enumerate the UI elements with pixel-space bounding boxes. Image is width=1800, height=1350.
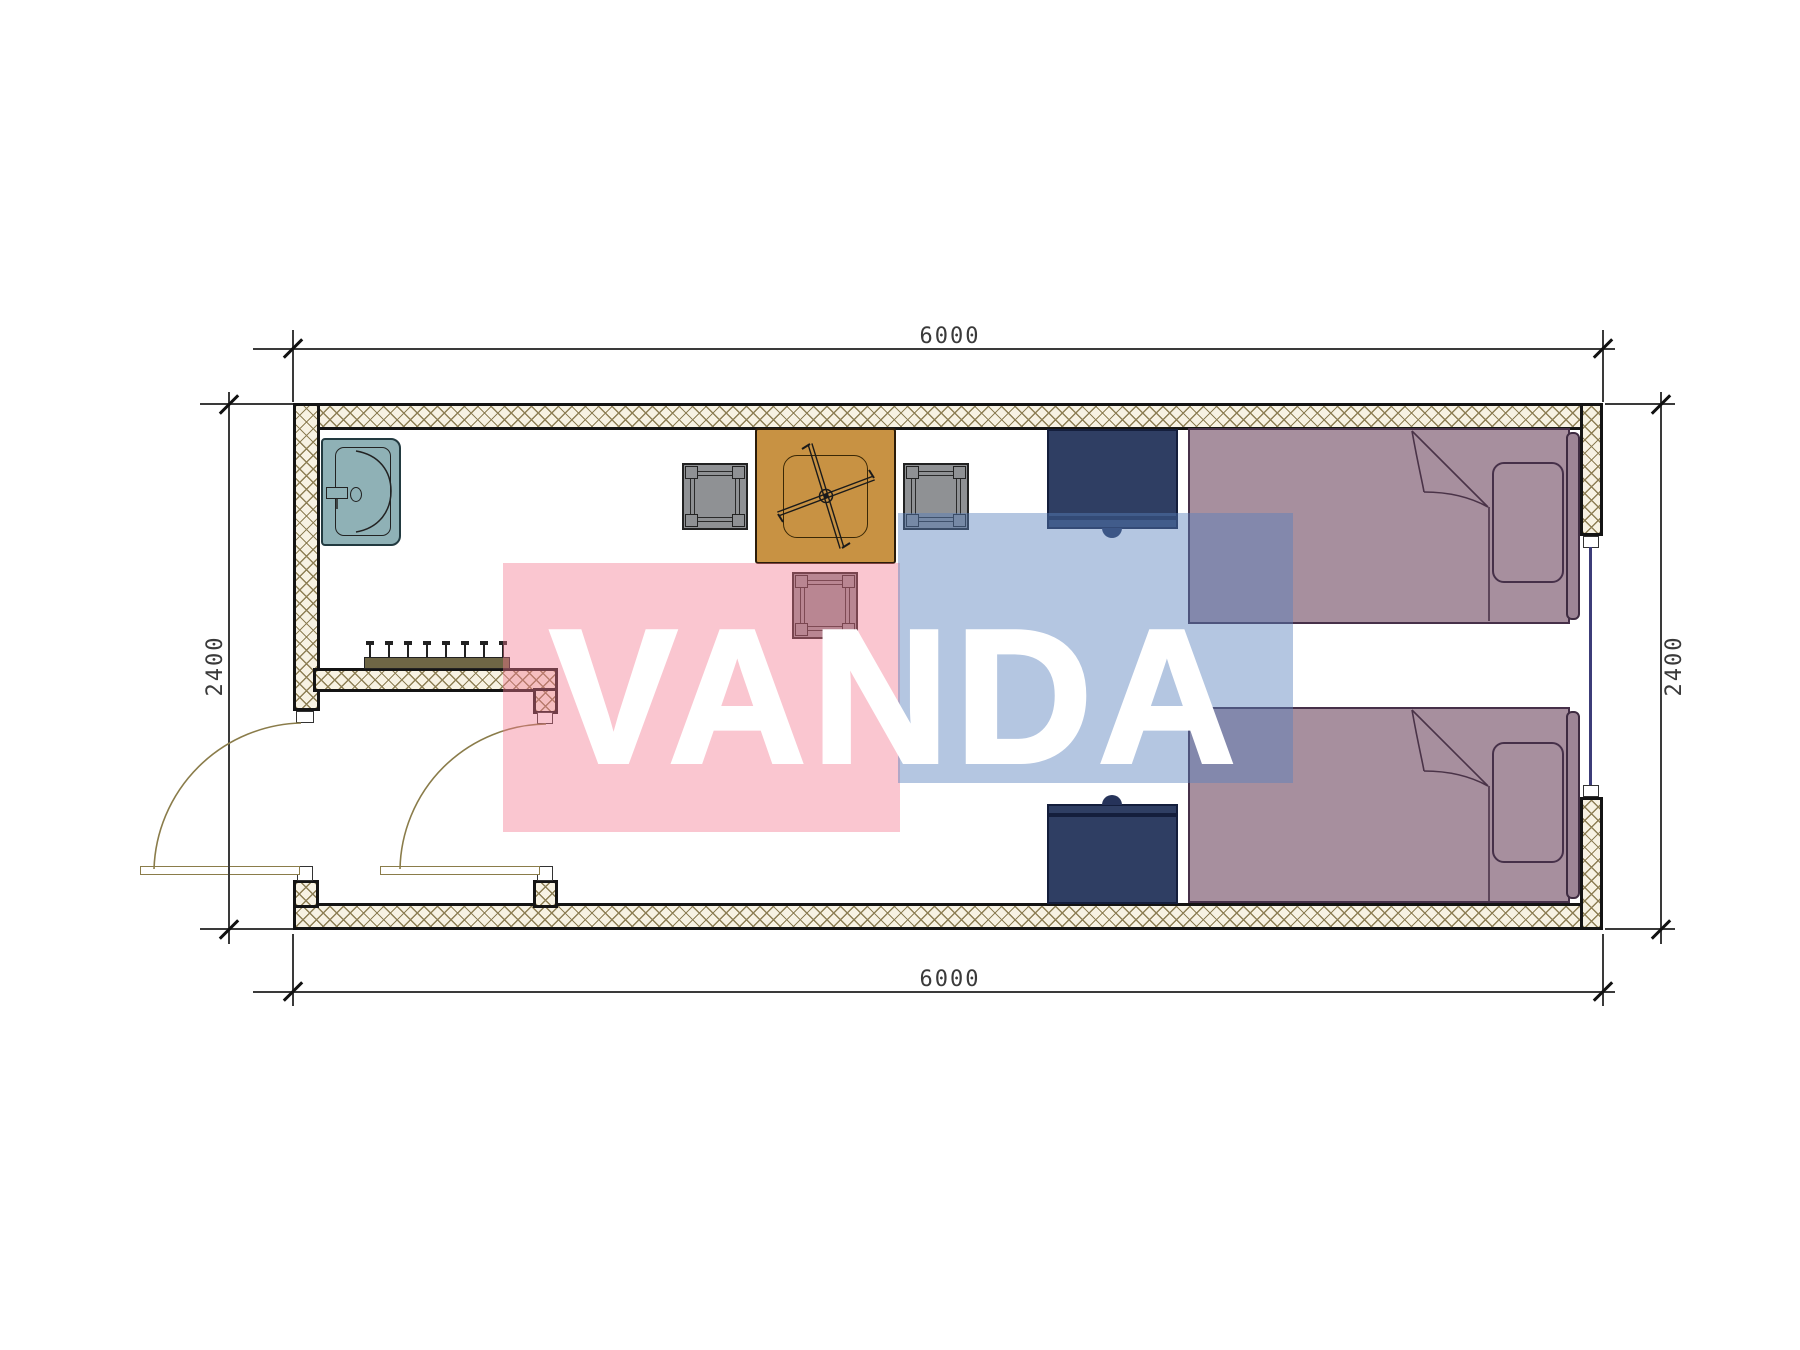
sink-faucet — [326, 487, 348, 499]
watermark-text: VANDA — [550, 622, 1310, 777]
coat-rack-bar — [364, 657, 510, 669]
sink-knob — [350, 487, 362, 502]
coat-rack-hooks — [364, 641, 510, 657]
floor-plan-canvas: 6000 6000 2400 2400 VANDA — [0, 0, 1800, 1350]
